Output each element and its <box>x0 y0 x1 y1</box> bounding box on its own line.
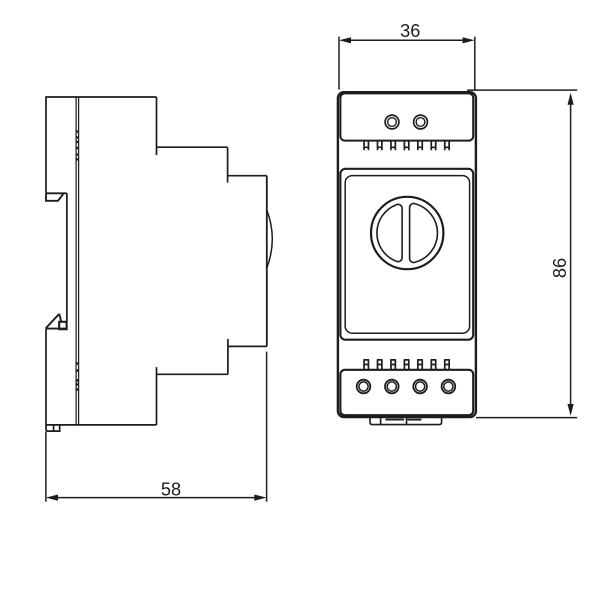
svg-text:36: 36 <box>400 21 420 41</box>
svg-text:86: 86 <box>550 258 570 278</box>
svg-text:58: 58 <box>161 479 181 499</box>
